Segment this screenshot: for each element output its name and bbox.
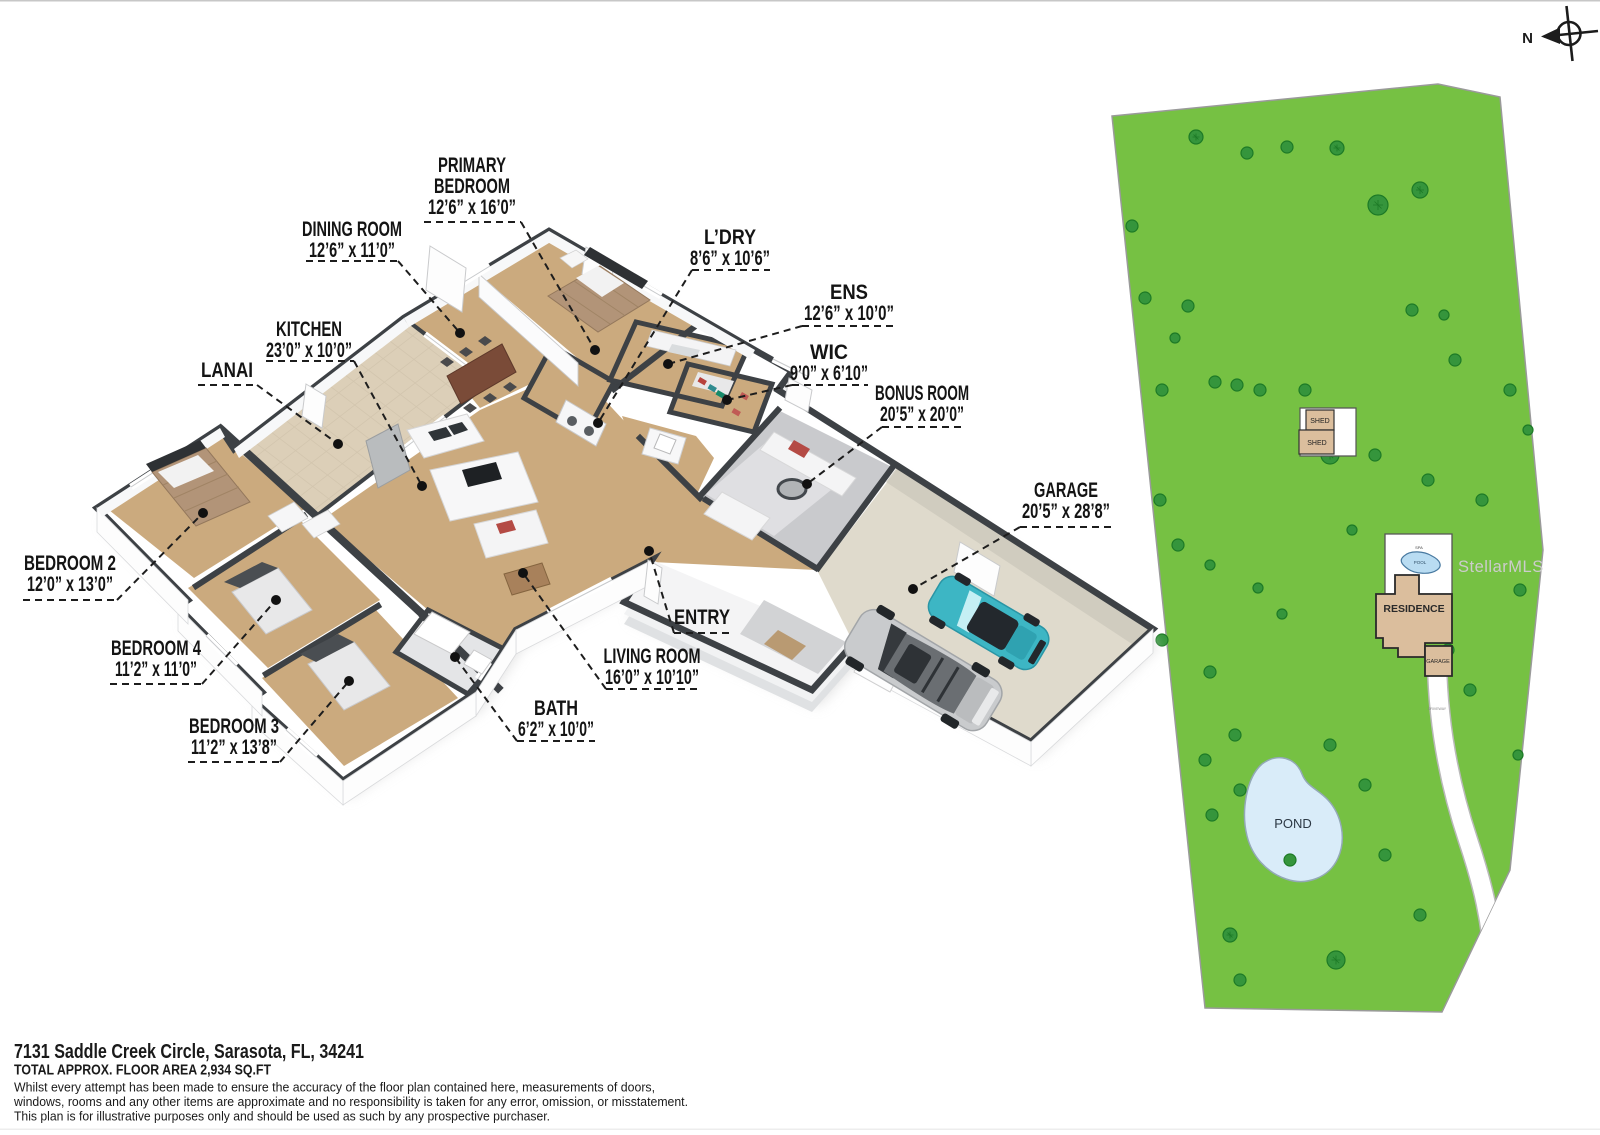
svg-text:ENTRY: ENTRY xyxy=(674,606,730,629)
svg-text:PRIMARY: PRIMARY xyxy=(438,154,506,177)
svg-text:DINING ROOM: DINING ROOM xyxy=(302,218,402,241)
svg-text:LANAI: LANAI xyxy=(201,359,253,382)
svg-text:WIC: WIC xyxy=(810,341,848,364)
svg-text:7131 Saddle Creek Circle, Sara: 7131 Saddle Creek Circle, Sarasota, FL, … xyxy=(14,1040,364,1063)
svg-text:LIVING ROOM: LIVING ROOM xyxy=(604,645,701,668)
svg-text:SPA: SPA xyxy=(1415,545,1423,550)
svg-text:11’2” x 11’0”: 11’2” x 11’0” xyxy=(115,658,197,681)
svg-text:SHED: SHED xyxy=(1307,440,1326,447)
svg-text:BEDROOM 4: BEDROOM 4 xyxy=(111,637,201,660)
svg-text:POND: POND xyxy=(1274,816,1312,831)
svg-text:23’0” x 10’0”: 23’0” x 10’0” xyxy=(266,339,352,362)
svg-text:BEDROOM 3: BEDROOM 3 xyxy=(189,715,279,738)
svg-text:12’6” x 10’0”: 12’6” x 10’0” xyxy=(804,302,894,325)
svg-text:GARAGE: GARAGE xyxy=(1426,659,1450,665)
svg-text:BONUS ROOM: BONUS ROOM xyxy=(875,382,969,405)
svg-text:BEDROOM: BEDROOM xyxy=(434,175,510,198)
svg-text:12’6” x 11’0”: 12’6” x 11’0” xyxy=(309,239,395,262)
svg-text:12’0” x 13’0”: 12’0” x 13’0” xyxy=(27,573,113,596)
svg-text:RESIDENCE: RESIDENCE xyxy=(1383,603,1444,615)
svg-text:20’5” x 20’0”: 20’5” x 20’0” xyxy=(880,403,964,426)
svg-text:TOTAL APPROX. FLOOR AREA 2,934: TOTAL APPROX. FLOOR AREA 2,934 SQ.FT xyxy=(14,1062,271,1079)
svg-text:12’6” x 16’0”: 12’6” x 16’0” xyxy=(428,196,516,219)
svg-text:N: N xyxy=(1522,30,1533,47)
svg-text:StellarMLS: StellarMLS xyxy=(1458,558,1544,576)
svg-text:16’0” x 10’10”: 16’0” x 10’10” xyxy=(605,666,699,689)
svg-text:DRIVEWAY: DRIVEWAY xyxy=(1428,707,1447,711)
svg-text:This plan is for illustrative: This plan is for illustrative purposes o… xyxy=(14,1109,550,1124)
svg-text:Whilst every attempt has been: Whilst every attempt has been made to en… xyxy=(14,1080,655,1095)
svg-text:KITCHEN: KITCHEN xyxy=(276,318,342,341)
svg-text:POOL: POOL xyxy=(1414,560,1427,565)
svg-text:L’DRY: L’DRY xyxy=(704,226,756,249)
svg-text:ENS: ENS xyxy=(830,281,868,304)
svg-text:6’2” x 10’0”: 6’2” x 10’0” xyxy=(518,718,594,741)
svg-text:windows, rooms and any other i: windows, rooms and any other items are a… xyxy=(13,1094,688,1109)
svg-text:11’2” x 13’8”: 11’2” x 13’8” xyxy=(191,736,277,759)
svg-text:BEDROOM 2: BEDROOM 2 xyxy=(24,552,116,575)
svg-text:8’6” x 10’6”: 8’6” x 10’6” xyxy=(690,247,770,270)
svg-text:BATH: BATH xyxy=(534,697,578,720)
svg-text:SHED: SHED xyxy=(1310,418,1329,425)
svg-text:GARAGE: GARAGE xyxy=(1034,479,1098,502)
svg-text:9’0” x 6’10”: 9’0” x 6’10” xyxy=(790,362,868,385)
svg-text:20’5” x 28’8”: 20’5” x 28’8” xyxy=(1022,500,1110,523)
